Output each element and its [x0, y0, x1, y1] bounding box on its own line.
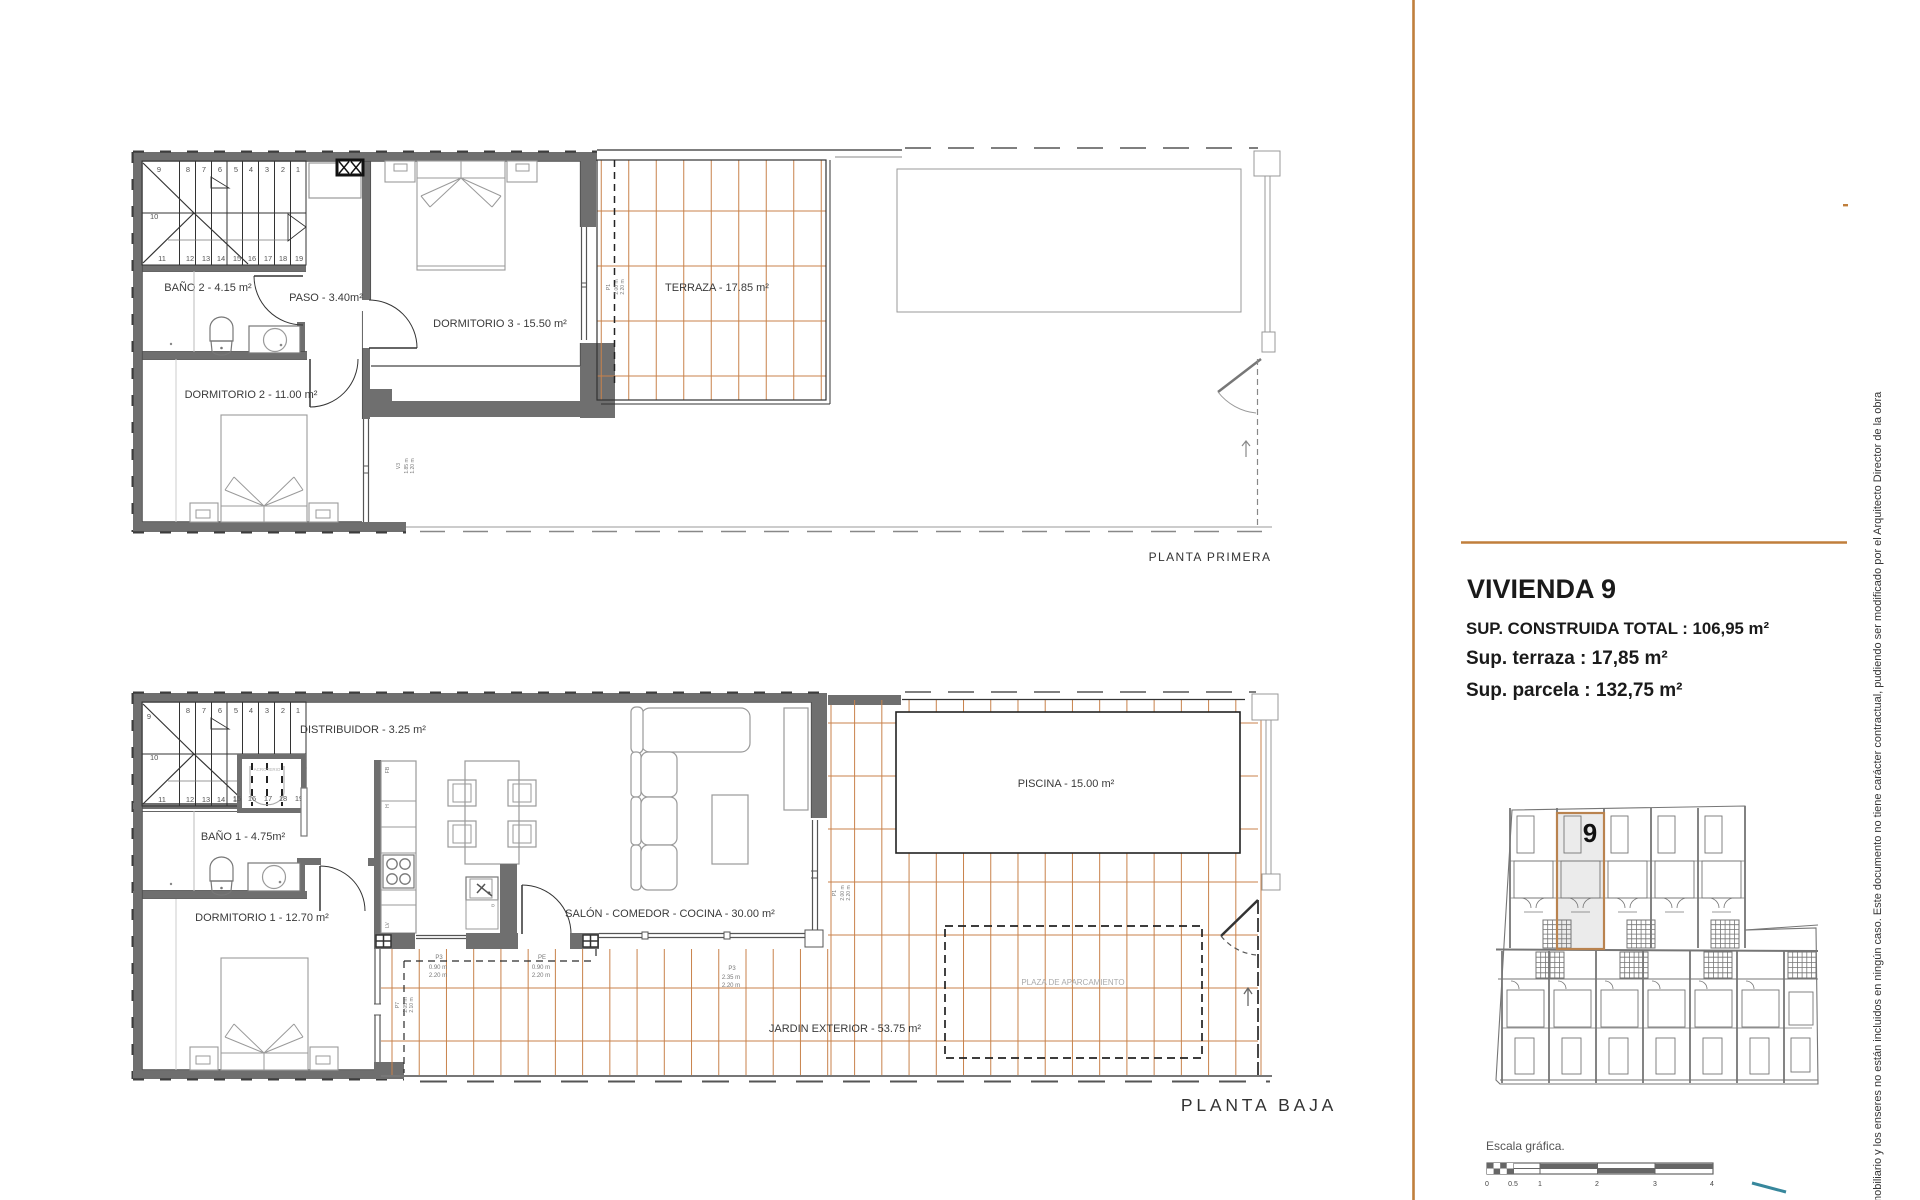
svg-text:P3: P3 [728, 966, 736, 972]
svg-text:18: 18 [279, 794, 287, 803]
svg-text:PE: PE [538, 955, 546, 961]
svg-text:16: 16 [248, 794, 256, 803]
svg-text:14: 14 [217, 254, 225, 263]
svg-text:2.35 m: 2.35 m [722, 975, 740, 981]
svg-text:10: 10 [150, 753, 158, 762]
svg-text:PLANTA PRIMERA: PLANTA PRIMERA [1149, 550, 1272, 564]
svg-text:P1: P1 [832, 890, 838, 896]
svg-text:0: 0 [1485, 1181, 1489, 1188]
svg-text:7: 7 [202, 165, 206, 174]
svg-text:P3: P3 [435, 955, 443, 961]
svg-text:DISTRIBUIDOR - 3.25 m²: DISTRIBUIDOR - 3.25 m² [300, 724, 426, 736]
svg-text:4: 4 [249, 165, 253, 174]
svg-text:FB: FB [385, 766, 391, 773]
svg-text:3: 3 [265, 165, 269, 174]
svg-text:9: 9 [157, 165, 161, 174]
svg-text:1: 1 [296, 165, 300, 174]
svg-text:JARDIN EXTERIOR - 53.75 m²: JARDIN EXTERIOR - 53.75 m² [769, 1023, 922, 1035]
svg-text:2.20 m: 2.20 m [722, 983, 740, 989]
svg-text:PISCINA - 15.00 m²: PISCINA - 15.00 m² [1018, 778, 1115, 790]
svg-text:17: 17 [264, 254, 272, 263]
svg-text:5: 5 [234, 165, 238, 174]
svg-text:12: 12 [186, 254, 194, 263]
svg-text:2: 2 [281, 165, 285, 174]
svg-text:V3: V3 [396, 463, 402, 469]
svg-text:15: 15 [233, 254, 241, 263]
svg-text:17: 17 [264, 794, 272, 803]
svg-text:8: 8 [186, 165, 190, 174]
svg-text:DORMITORIO 1 - 12.70 m²: DORMITORIO 1 - 12.70 m² [195, 912, 329, 924]
svg-text:2.20 m: 2.20 m [620, 279, 626, 294]
svg-text:11: 11 [158, 795, 166, 804]
svg-text:1: 1 [1538, 1181, 1542, 1188]
svg-text:16: 16 [248, 254, 256, 263]
svg-text:Sup. terraza : 17,85 m²: Sup. terraza : 17,85 m² [1466, 648, 1668, 669]
svg-text:Sup. parcela : 132,75 m²: Sup. parcela : 132,75 m² [1466, 680, 1683, 701]
svg-text:SUP. CONSTRUIDA TOTAL : 106,95: SUP. CONSTRUIDA TOTAL : 106,95 m² [1466, 619, 1769, 638]
svg-text:SALÓN - COMEDOR - COCINA - 30.: SALÓN - COMEDOR - COCINA - 30.00 m² [565, 907, 775, 920]
svg-text:8: 8 [186, 706, 190, 715]
svg-text:6: 6 [218, 165, 222, 174]
svg-text:DORMITORIO 2 - 11.00 m²: DORMITORIO 2 - 11.00 m² [185, 389, 318, 401]
svg-text:13: 13 [202, 254, 210, 263]
svg-text:7: 7 [202, 706, 206, 715]
svg-text:5: 5 [234, 706, 238, 715]
svg-text:0.90 m: 0.90 m [532, 965, 550, 971]
svg-text:VIVIENDA 9: VIVIENDA 9 [1467, 574, 1616, 604]
svg-text:BAÑO 1 - 4.75m²: BAÑO 1 - 4.75m² [201, 830, 286, 843]
svg-text:0.5: 0.5 [1508, 1181, 1518, 1188]
svg-text:3: 3 [1653, 1181, 1657, 1188]
svg-text:2.10 m: 2.10 m [409, 997, 415, 1012]
svg-text:1.20 m: 1.20 m [410, 458, 416, 473]
svg-text:0.90 m: 0.90 m [429, 965, 447, 971]
svg-text:2.20 m: 2.20 m [429, 973, 447, 979]
svg-text:H: H [385, 804, 391, 808]
svg-text:P1: P1 [606, 284, 612, 290]
svg-text:2.20 m: 2.20 m [846, 885, 852, 900]
svg-text:DORMITORIO 3 - 15.50 m²: DORMITORIO 3 - 15.50 m² [433, 318, 567, 330]
svg-text:19: 19 [295, 254, 303, 263]
svg-text:4: 4 [1710, 1181, 1714, 1188]
svg-text:TERRAZA - 17.85 m²: TERRAZA - 17.85 m² [665, 282, 769, 294]
svg-text:2: 2 [1595, 1181, 1599, 1188]
svg-text:2: 2 [281, 706, 285, 715]
svg-text:9: 9 [1583, 818, 1597, 848]
svg-text:15: 15 [233, 794, 241, 803]
svg-text:1: 1 [296, 706, 300, 715]
svg-text:ACROTERIO: ACROTERIO [254, 767, 281, 772]
svg-text:PLANTA BAJA: PLANTA BAJA [1181, 1095, 1337, 1115]
svg-text:18: 18 [279, 254, 287, 263]
svg-text:11: 11 [158, 254, 166, 263]
svg-text:PASO - 3.40m²: PASO - 3.40m² [289, 292, 363, 304]
svg-text:BAÑO 2 - 4.15 m²: BAÑO 2 - 4.15 m² [164, 281, 252, 294]
svg-text:LV: LV [385, 921, 391, 927]
svg-text:13: 13 [202, 795, 210, 804]
svg-text:mobiliario y los enseres no es: mobiliario y los enseres no están inclui… [1872, 391, 1884, 1200]
svg-text:PLAZA DE APARCAMIENTO: PLAZA DE APARCAMIENTO [1021, 978, 1124, 987]
svg-text:14: 14 [217, 795, 225, 804]
svg-text:6: 6 [218, 706, 222, 715]
svg-text:4: 4 [249, 706, 253, 715]
svg-text:Escala gráfica.: Escala gráfica. [1486, 1139, 1565, 1153]
svg-text:3: 3 [265, 706, 269, 715]
svg-text:P7: P7 [395, 1002, 401, 1008]
svg-text:12: 12 [186, 795, 194, 804]
svg-text:9: 9 [147, 712, 151, 721]
svg-text:10: 10 [150, 212, 158, 221]
svg-text:2.20 m: 2.20 m [532, 973, 550, 979]
